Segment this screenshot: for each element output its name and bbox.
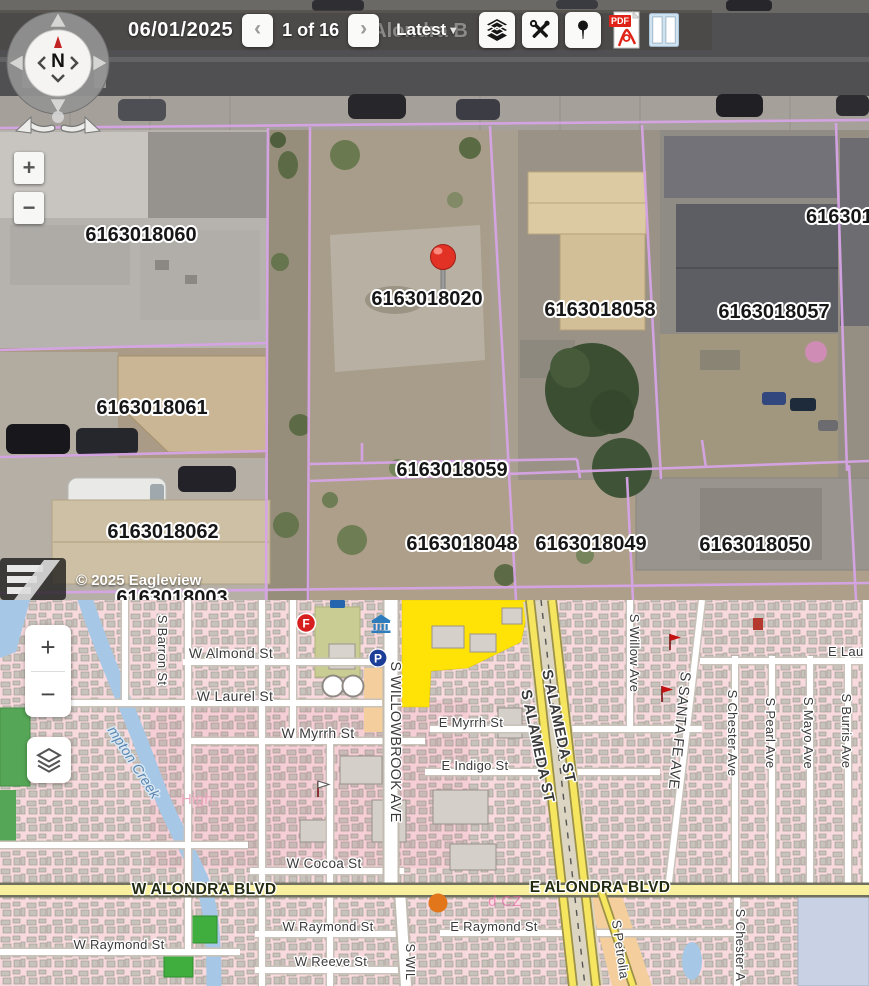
street-name-label: E Lau [828,644,863,659]
street-name-label: S Willow Ave [627,614,642,693]
street-name-label: S Chester A [733,909,748,982]
map-zoom-in-button[interactable]: + [25,625,71,671]
drop-pin-button[interactable] [565,12,601,48]
eagleview-logo [0,558,66,600]
street-name-label: S Mayo Ave [801,697,816,769]
svg-text:PDF: PDF [611,16,630,26]
map-zoom-out-button[interactable]: − [25,672,71,718]
street-name-label: High [181,791,213,808]
prev-image-button[interactable]: ‹ [242,14,273,47]
parking-label: P [374,652,382,666]
parcel-number-label: 6163018057 [718,301,829,323]
parcel-number-label: 616301 [806,206,869,228]
split-view-icon [649,13,679,47]
parcel-number-label: 6163018050 [699,534,810,556]
street-name-label: d CZ [488,893,522,910]
copyright-notice: © 2025 Eagleview [76,572,201,589]
layers-button[interactable] [479,12,515,48]
red-building-icon [753,618,763,630]
layers-outline-icon [34,746,64,774]
pdf-export-icon: PDF [608,9,642,51]
aerial-zoom-out-button[interactable]: − [14,192,44,224]
parcel-number-label: 6163018060 [85,224,196,246]
street-name-label: W Cocoa St [286,856,361,871]
page-indicator: 1 of 16 [282,20,339,41]
street-name-label: W Laurel St [197,688,273,704]
info-sign-icon [330,600,345,608]
map-zoom-control: + − [25,625,71,717]
pond [682,942,702,980]
export-pdf-button[interactable]: PDF [608,9,642,51]
street-map-scene: W Almond StW Laurel StW Myrrh StE Myrrh … [0,600,869,986]
parcel-number-label: 6163018048 [406,533,517,555]
parcel-number-label: 6163018059 [396,459,507,481]
version-dropdown[interactable]: Latest ▾ [396,20,456,40]
parcel-number-label: 6163018062 [107,521,218,543]
street-name-label: W Raymond St [73,937,164,952]
street-name-label: E Myrrh St [439,715,503,730]
street-map-pane[interactable]: W Almond StW Laurel StW Myrrh StE Myrrh … [0,600,869,986]
layers-icon [486,18,508,42]
street-name-label: W Almond St [189,645,273,661]
version-label: Latest [396,20,446,40]
compass-control[interactable]: N [2,0,114,136]
street-name-label: E ALONDRA BLVD [530,879,671,896]
street-name-label: S Chester Ave [725,690,740,777]
street-name-label: E Raymond St [450,919,538,934]
aerial-imagery-pane[interactable]: 6163018060616301616301802061630180586163… [0,0,869,600]
street-name-label: S WIL [403,944,418,981]
street-name-label: W ALONDRA BLVD [132,881,277,898]
street-name-label: W Myrrh St [282,725,355,741]
parcel-viewer-app: 6163018060616301616301802061630180586163… [0,0,869,986]
tank-icon [323,676,344,697]
aerial-zoom-in-button[interactable]: + [14,152,44,184]
map-layers-button[interactable] [27,737,71,783]
pin-icon [572,19,594,41]
tank-icon [343,676,364,697]
street-name-label: S Burris Ave [839,694,854,769]
next-image-button[interactable]: › [348,14,379,47]
measure-tools-button[interactable] [522,12,558,48]
fire-station-label: F [302,617,309,631]
parcel-number-label: 6163018020 [371,288,482,310]
parcel-number-label: 6163018049 [535,533,646,555]
street-name-label: S Barron St [155,615,170,686]
chevron-down-icon: ▾ [450,23,456,37]
street-name-label: W Raymond St [282,919,373,934]
street-name-label: S WILLOWBROOK AVE [387,661,403,822]
alley-strip [268,130,311,600]
big-box-building [798,897,869,986]
orange-dot-marker [429,894,448,913]
split-view-button[interactable] [649,13,679,47]
tools-icon [529,19,551,41]
aerial-scene: 6163018060616301616301802061630180586163… [0,0,869,600]
toolbar-icon-group: PDF [479,9,679,51]
parcel-number-label: 6163018058 [544,299,655,321]
street-name-label: S Pearl Ave [763,698,778,769]
parcel-number-label: 6163018061 [96,397,207,419]
north-label: N [51,51,65,72]
capture-date[interactable]: 06/01/2025 [128,19,233,42]
street-name-label: W Reeve St [295,954,367,969]
street-name-label: E Indigo St [442,758,509,773]
